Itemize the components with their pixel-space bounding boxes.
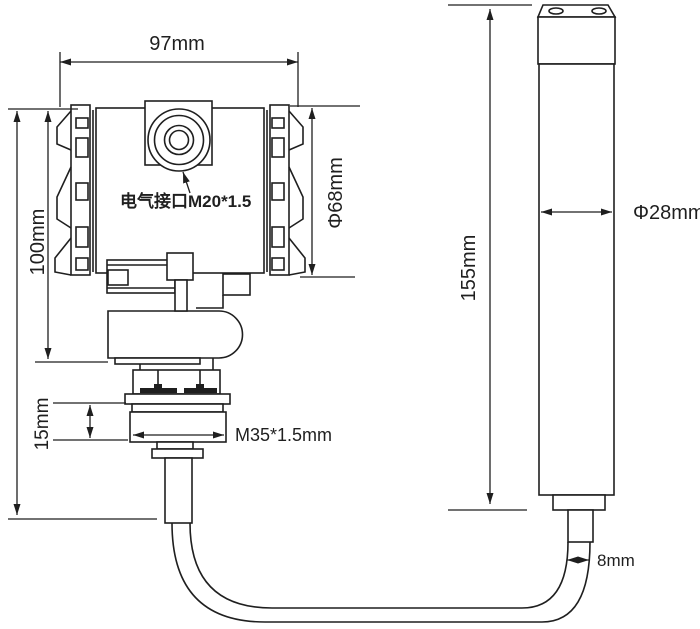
dim-label-head-diameter: Φ68mm xyxy=(325,157,347,229)
left-fin xyxy=(55,105,90,275)
dimension-drawing: 97mm 100mm Φ68mm 15mm M35*1.5mm 155 xyxy=(0,0,700,629)
drawing-svg: 97mm 100mm Φ68mm 15mm M35*1.5mm 155 xyxy=(0,0,700,629)
dim-label-probe-diameter: Φ28mm xyxy=(633,202,700,224)
dim-cable-diameter: 8mm xyxy=(567,551,635,570)
dim-head-width: 97mm xyxy=(60,33,298,107)
connection-cable xyxy=(172,523,590,622)
dim-label-thread-height: 15mm xyxy=(32,398,53,451)
probe xyxy=(538,5,615,542)
probe-nozzle xyxy=(568,510,593,542)
thread-nut xyxy=(130,412,226,442)
dim-label-process-thread: M35*1.5mm xyxy=(235,425,332,445)
dim-label-probe-length: 155mm xyxy=(458,235,480,302)
process-connection xyxy=(125,370,230,523)
right-fin xyxy=(270,105,305,275)
capsule-body xyxy=(108,311,243,358)
dim-label-cable-diameter: 8mm xyxy=(597,551,635,570)
transmitter-head xyxy=(55,101,305,275)
dim-label-head-height: 100mm xyxy=(27,209,49,276)
probe-cap xyxy=(538,17,615,64)
dim-label-head-width: 97mm xyxy=(149,33,205,55)
flange xyxy=(125,394,230,404)
dim-thread-height: 15mm xyxy=(32,398,128,451)
electrical-port xyxy=(145,101,212,171)
dim-probe-length: 155mm xyxy=(448,5,532,510)
probe-tube xyxy=(539,64,614,495)
callout-label-electrical-port: 电气接口M20*1.5 xyxy=(120,191,251,211)
dim-head-height: 100mm xyxy=(27,111,49,359)
dim-head-diameter: Φ68mm xyxy=(300,108,355,277)
cable-gland-stem xyxy=(165,458,192,523)
